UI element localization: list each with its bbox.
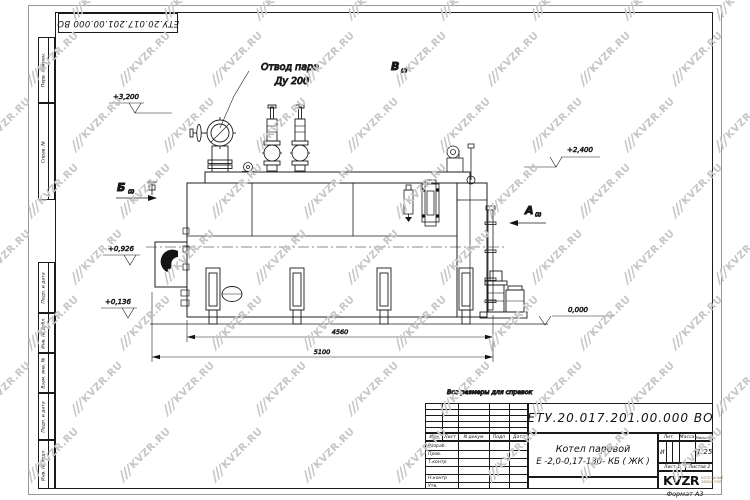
elevation-mark-0000: 0,000 <box>539 306 614 325</box>
col-izm: Изм <box>426 434 442 440</box>
col-data: Дата <box>509 434 529 440</box>
col-ndocum: N докум <box>458 434 489 440</box>
svg-text:+2,400: +2,400 <box>567 146 593 154</box>
sheet-info: Лист 1 <box>659 464 685 470</box>
col-list: Лист <box>442 434 458 440</box>
change-table <box>425 403 528 433</box>
callout-steam-line1: Отвод пара <box>261 62 319 73</box>
rear-top-devices <box>447 144 475 184</box>
kvzr-logo-subtext: КОТЕЛЬНЫЙ ЗАВОД РЭП <box>701 476 723 484</box>
format-label: Формат А3 <box>640 490 730 498</box>
lit-mass-scale-header: Лит. Масса Масштаб <box>658 433 713 441</box>
burner-flame <box>161 250 178 272</box>
svg-text:Б: Б <box>117 181 125 194</box>
svg-text:(2): (2) <box>128 189 135 195</box>
logo-cell: KVZR КОТЕЛЬНЫЙ ЗАВОД РЭП <box>658 471 713 489</box>
view-arrow-a: А (2) <box>509 204 546 226</box>
reference-note: Все размеры для справок <box>447 389 533 396</box>
doc-number: ЕТУ.20.017.201.00.000 ВО <box>527 411 713 425</box>
svg-text:0,000: 0,000 <box>568 306 589 314</box>
water-level-gauges <box>404 180 439 226</box>
drawing-sheet: ЕТУ.20.017.201.00.000 ВО Перв. примен. С… <box>0 0 750 500</box>
sheets-info: Листов 2 <box>685 464 714 470</box>
staff-rows: Разраб. Пров. Т.контр Н.контр Утв. <box>425 441 528 489</box>
col-podp: Подп <box>489 434 509 440</box>
row-prov: Пров. <box>428 452 441 457</box>
elevation-mark-2400: +2,400 <box>524 146 600 167</box>
support-legs <box>206 268 473 324</box>
row-utv: Утв. <box>428 484 438 489</box>
scale-header: Масштаб <box>695 434 714 440</box>
lit-value: И <box>659 442 666 462</box>
row-razrab: Разраб. <box>428 444 446 449</box>
burner-box <box>155 228 189 306</box>
safety-valve <box>290 105 310 171</box>
svg-text:+3,200: +3,200 <box>113 93 139 101</box>
dimension-4560: 4560 <box>187 315 493 342</box>
elevation-mark-0136: +0,136 <box>101 298 137 318</box>
dimension-5100: 5100 <box>152 292 493 362</box>
change-table-header: Изм Лист N докум Подп Дата <box>425 433 528 441</box>
callout-steam-line2: Ду 200 <box>274 76 309 87</box>
lit-mass-scale-values: И 1:25 <box>658 441 713 463</box>
lit-header: Лит. <box>659 434 679 440</box>
row-nkontr: Н.контр <box>428 476 447 481</box>
front-stub-fitting <box>147 182 157 195</box>
elevation-mark-0926: +0,926 <box>103 245 140 265</box>
manhole <box>222 287 242 302</box>
sheet-info-row: Лист 1 Листов 2 <box>658 463 713 471</box>
empty-bottom-cell <box>528 477 658 489</box>
doc-number-cell: ЕТУ.20.017.201.00.000 ВО <box>528 403 713 433</box>
mass-header: Масса <box>679 434 695 440</box>
svg-text:4560: 4560 <box>332 328 349 336</box>
svg-text:В: В <box>391 60 399 73</box>
steam-outlet-valve <box>190 117 236 172</box>
view-arrow-b: Б (2) <box>116 181 157 201</box>
product-name-line1: Котел паровой <box>556 444 631 455</box>
svg-text:А: А <box>524 204 534 217</box>
view-arrow-v: В (2) <box>391 60 408 74</box>
kvzr-logo-text: KVZR <box>663 473 699 488</box>
small-top-fitting <box>242 163 254 172</box>
product-name-line2: Е -2,0-0,17-130- КБ ( ЖК ) <box>536 457 650 467</box>
svg-text:+0,926: +0,926 <box>108 245 134 253</box>
svg-text:(2): (2) <box>535 212 542 218</box>
svg-text:5100: 5100 <box>314 348 331 356</box>
svg-text:+0,136: +0,136 <box>105 298 131 306</box>
elevation-mark-3200: +3,200 <box>109 93 172 113</box>
steam-outlet-callout: Отвод пара Ду 200 <box>220 62 319 128</box>
safety-valve <box>262 105 282 171</box>
row-tkontr: Т.контр <box>428 460 446 465</box>
scale-value: 1:25 <box>695 442 714 462</box>
product-name-cell: Котел паровой Е -2,0-0,17-130- КБ ( ЖК ) <box>528 433 658 477</box>
svg-text:(2): (2) <box>401 68 408 74</box>
